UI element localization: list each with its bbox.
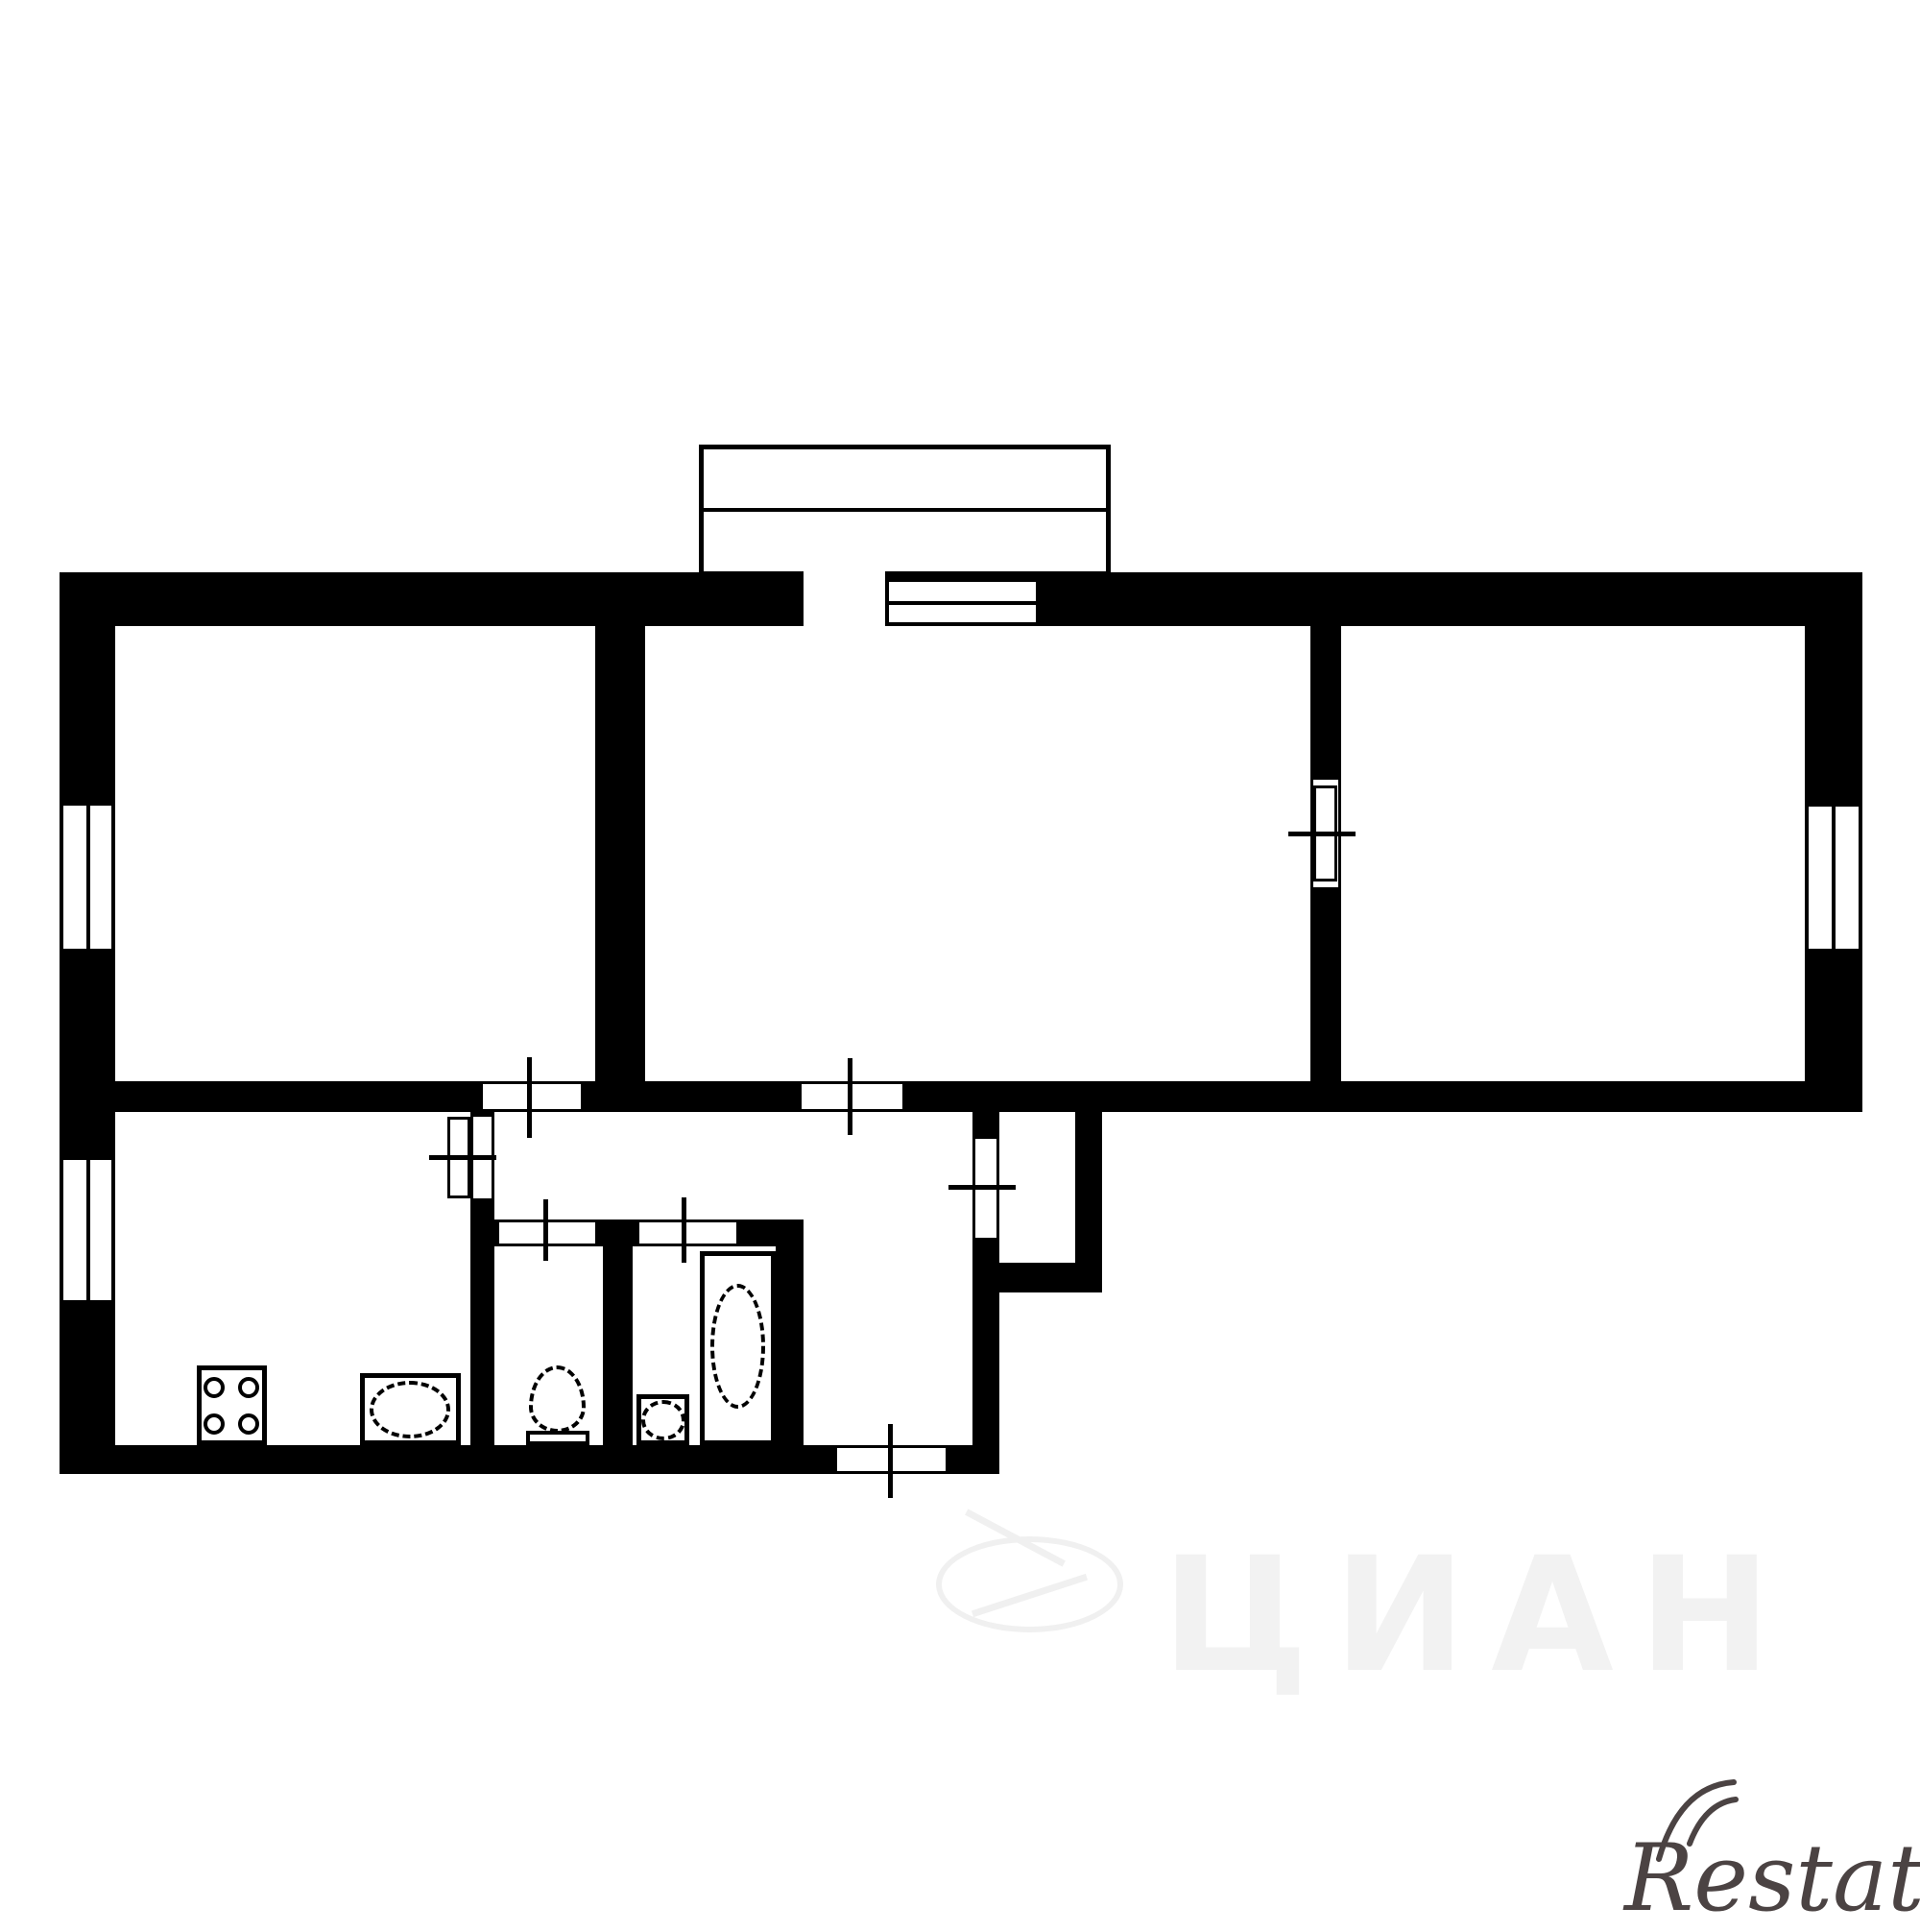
- brand-layer: Restate: [0, 0, 1920, 1920]
- floorplan-image: ЦИАН Restate: [0, 0, 1920, 1920]
- restate-logo-text: Restate: [1624, 1832, 1920, 1924]
